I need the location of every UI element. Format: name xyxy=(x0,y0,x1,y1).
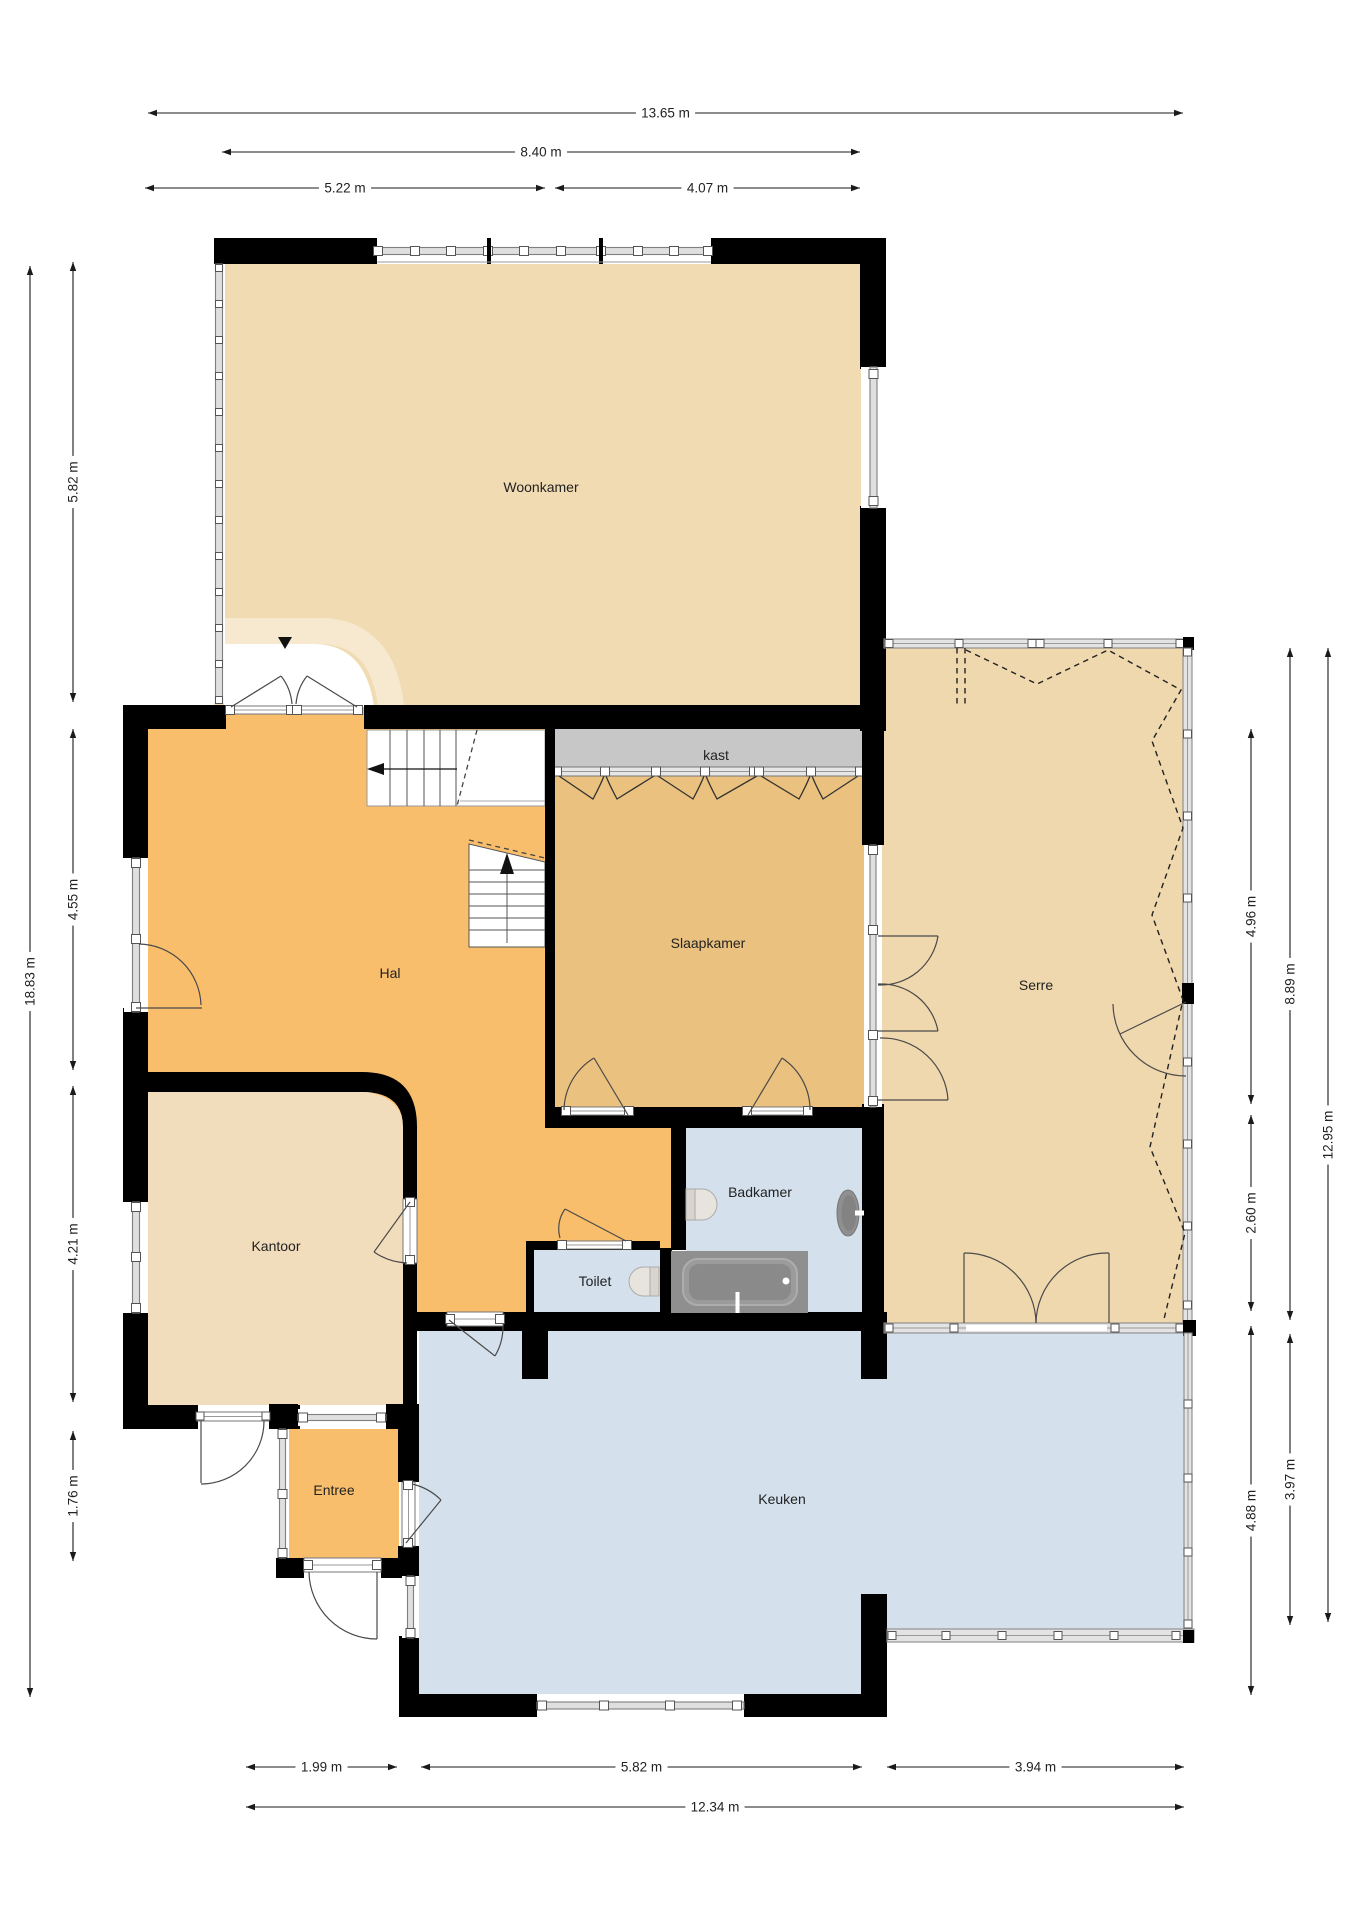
svg-text:4.96 m: 4.96 m xyxy=(1244,896,1259,937)
svg-text:4.55 m: 4.55 m xyxy=(66,879,81,920)
svg-text:kast: kast xyxy=(703,747,729,763)
svg-text:18.83 m: 18.83 m xyxy=(23,957,38,1006)
svg-text:5.82 m: 5.82 m xyxy=(621,1760,662,1775)
svg-text:4.07 m: 4.07 m xyxy=(687,181,728,196)
svg-text:Slaapkamer: Slaapkamer xyxy=(671,935,746,951)
svg-text:Toilet: Toilet xyxy=(579,1273,612,1289)
svg-text:Hal: Hal xyxy=(379,965,400,981)
svg-text:2.60 m: 2.60 m xyxy=(1244,1192,1259,1233)
svg-text:Woonkamer: Woonkamer xyxy=(503,479,579,495)
svg-text:Keuken: Keuken xyxy=(758,1491,805,1507)
svg-text:Badkamer: Badkamer xyxy=(728,1184,792,1200)
svg-text:8.89 m: 8.89 m xyxy=(1283,963,1298,1004)
svg-text:8.40 m: 8.40 m xyxy=(520,145,561,160)
svg-text:4.21 m: 4.21 m xyxy=(66,1223,81,1264)
svg-text:1.76 m: 1.76 m xyxy=(66,1475,81,1516)
svg-text:5.22 m: 5.22 m xyxy=(324,181,365,196)
svg-text:Entree: Entree xyxy=(313,1482,354,1498)
svg-text:1.99 m: 1.99 m xyxy=(301,1760,342,1775)
svg-text:3.97 m: 3.97 m xyxy=(1283,1459,1298,1500)
svg-text:Serre: Serre xyxy=(1019,977,1053,993)
svg-text:12.34 m: 12.34 m xyxy=(691,1800,740,1815)
svg-text:Kantoor: Kantoor xyxy=(251,1238,300,1254)
svg-text:13.65 m: 13.65 m xyxy=(641,106,690,121)
svg-text:5.82 m: 5.82 m xyxy=(66,461,81,502)
svg-text:3.94 m: 3.94 m xyxy=(1015,1760,1056,1775)
svg-text:4.88 m: 4.88 m xyxy=(1244,1490,1259,1531)
svg-text:12.95 m: 12.95 m xyxy=(1321,1111,1336,1160)
